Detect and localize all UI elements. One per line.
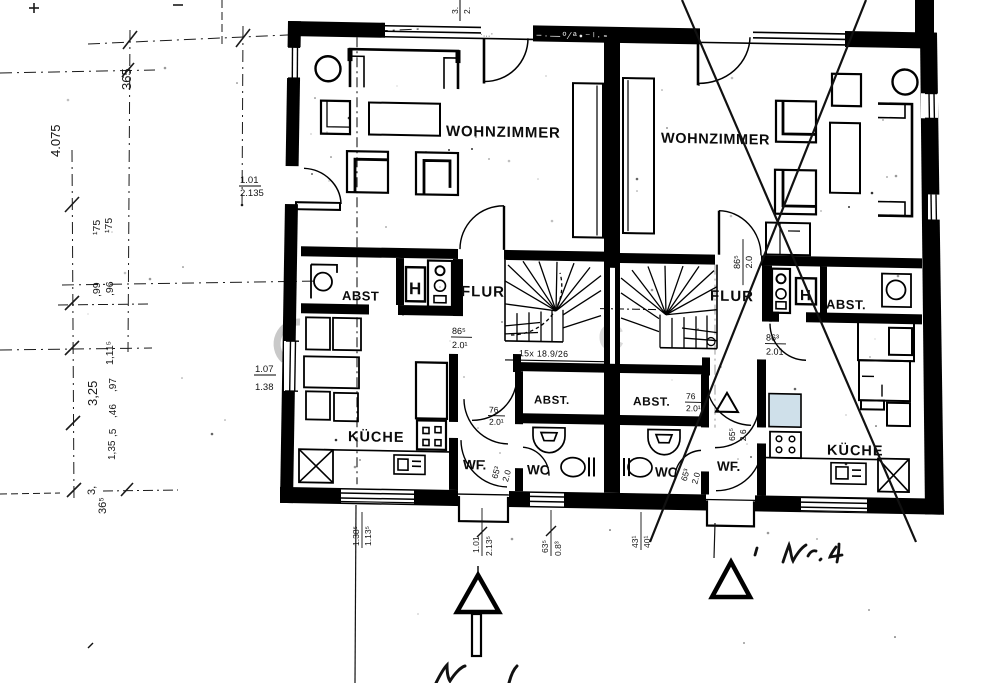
svg-text:−·―⁯º⁄ª•⁻ˡ·⁃: −·―⁯º⁄ª•⁻ˡ·⁃ [536,30,610,42]
svg-text:¹75: ¹75 [91,220,103,235]
svg-text:76: 76 [489,405,499,415]
svg-text:WC: WC [655,465,678,480]
svg-text:365: 365 [119,68,134,90]
svg-text:4.075: 4.075 [48,124,63,157]
svg-text:FLUR: FLUR [461,283,505,301]
svg-text:0.8³: 0.8³ [553,541,563,556]
svg-text:,46: ,46 [108,404,119,418]
svg-text:1.01: 1.01 [240,175,259,186]
svg-text:KÜCHE: KÜCHE [348,428,405,446]
svg-text:15x 18.9/26: 15x 18.9/26 [519,348,568,359]
svg-text:40¹: 40¹ [642,536,652,548]
svg-text:3,: 3, [86,486,98,495]
svg-text:3,25: 3,25 [85,381,100,406]
svg-text:¹75: ¹75 [103,218,115,233]
svg-text:43¹: 43¹ [630,536,640,548]
svg-text:86⁵: 86⁵ [452,326,466,336]
svg-text:2.0: 2.0 [744,256,754,269]
svg-text:,97: ,97 [108,378,119,392]
svg-text:86³: 86³ [766,333,779,343]
svg-text:ABST.: ABST. [633,394,670,409]
svg-text:1,35: 1,35 [107,440,118,460]
svg-text:,5: ,5 [108,428,119,437]
svg-text:76: 76 [686,391,696,401]
svg-text:WF.: WF. [717,459,740,474]
svg-text:2.13⁵: 2.13⁵ [484,536,494,556]
svg-text:,99: ,99 [91,282,103,297]
svg-text:2.0¹: 2.0¹ [686,403,701,413]
svg-text:1.38: 1.38 [255,382,274,393]
svg-text:2.6: 2.6 [738,429,748,441]
svg-text:ABST.: ABST. [826,297,866,313]
svg-text:63⁵: 63⁵ [540,540,550,553]
svg-text:·…⋅: ·…⋅ [480,29,493,38]
svg-text:1,11⁵: 1,11⁵ [104,341,116,365]
svg-text:WOHNZIMMER: WOHNZIMMER [446,123,561,142]
svg-text:36⁵: 36⁵ [97,497,109,514]
svg-text:1.01: 1.01 [471,536,481,553]
svg-text:WC: WC [527,462,550,477]
svg-text:1.13⁵: 1.13⁵ [363,526,373,546]
svg-text:2.: 2. [462,7,472,14]
svg-text:1.07: 1.07 [255,364,274,375]
svg-text:65⁵: 65⁵ [727,428,737,441]
svg-text:3.: 3. [450,7,460,14]
svg-text:WOHNZIMMER: WOHNZIMMER [661,131,770,149]
svg-text:1.38⁵: 1.38⁵ [351,526,361,546]
svg-text:2.01: 2.01 [766,347,784,357]
svg-text:,96: ,96 [104,281,116,296]
svg-text:2.0¹: 2.0¹ [452,340,468,350]
svg-text:2.0¹: 2.0¹ [489,417,504,427]
svg-text:KÜCHE: KÜCHE [827,442,884,460]
svg-text:WF.: WF. [463,457,486,472]
svg-text:ABST: ABST [342,288,379,304]
svg-text:86⁵: 86⁵ [732,255,742,269]
svg-text:ABST.: ABST. [534,394,570,407]
svg-text:H: H [409,279,421,298]
svg-text:2.135: 2.135 [240,188,264,199]
